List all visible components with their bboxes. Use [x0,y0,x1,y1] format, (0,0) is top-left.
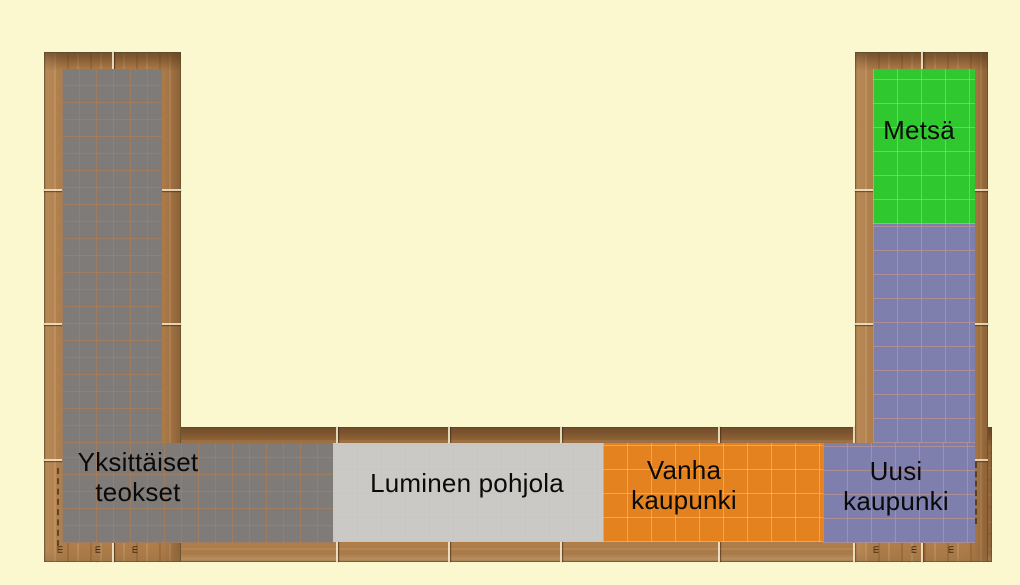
scale-marks-left: m m m [56,545,139,554]
zone-label-luminen-pohjola: Luminen pohjola [337,468,597,498]
scale-mark: m [946,546,955,554]
zone-uusi-kaupunki-column [873,224,975,443]
zone-label-yksittaiset-teokset: Yksittäiset teokset [38,447,238,507]
micro-annotation-strip-left [57,468,59,546]
zone-label-uusi-kaupunki: Uusi kaupunki [796,456,996,516]
scale-mark: m [130,546,139,554]
scale-marks-right: m m m [872,545,955,554]
zone-yksittaiset-teokset-column [62,69,162,443]
zone-metsa [873,69,975,224]
exhibition-floor-plan: Yksittäiset teokset Luminen pohjola Vanh… [0,0,1020,585]
scale-mark: m [871,546,880,554]
scale-mark: m [909,546,918,554]
scale-mark: m [93,546,102,554]
micro-annotation-strip-right [975,462,977,524]
zone-label-vanha-kaupunki: Vanha kaupunki [584,455,784,515]
scale-mark: m [55,546,64,554]
zone-label-metsa: Metsä [819,115,1019,145]
